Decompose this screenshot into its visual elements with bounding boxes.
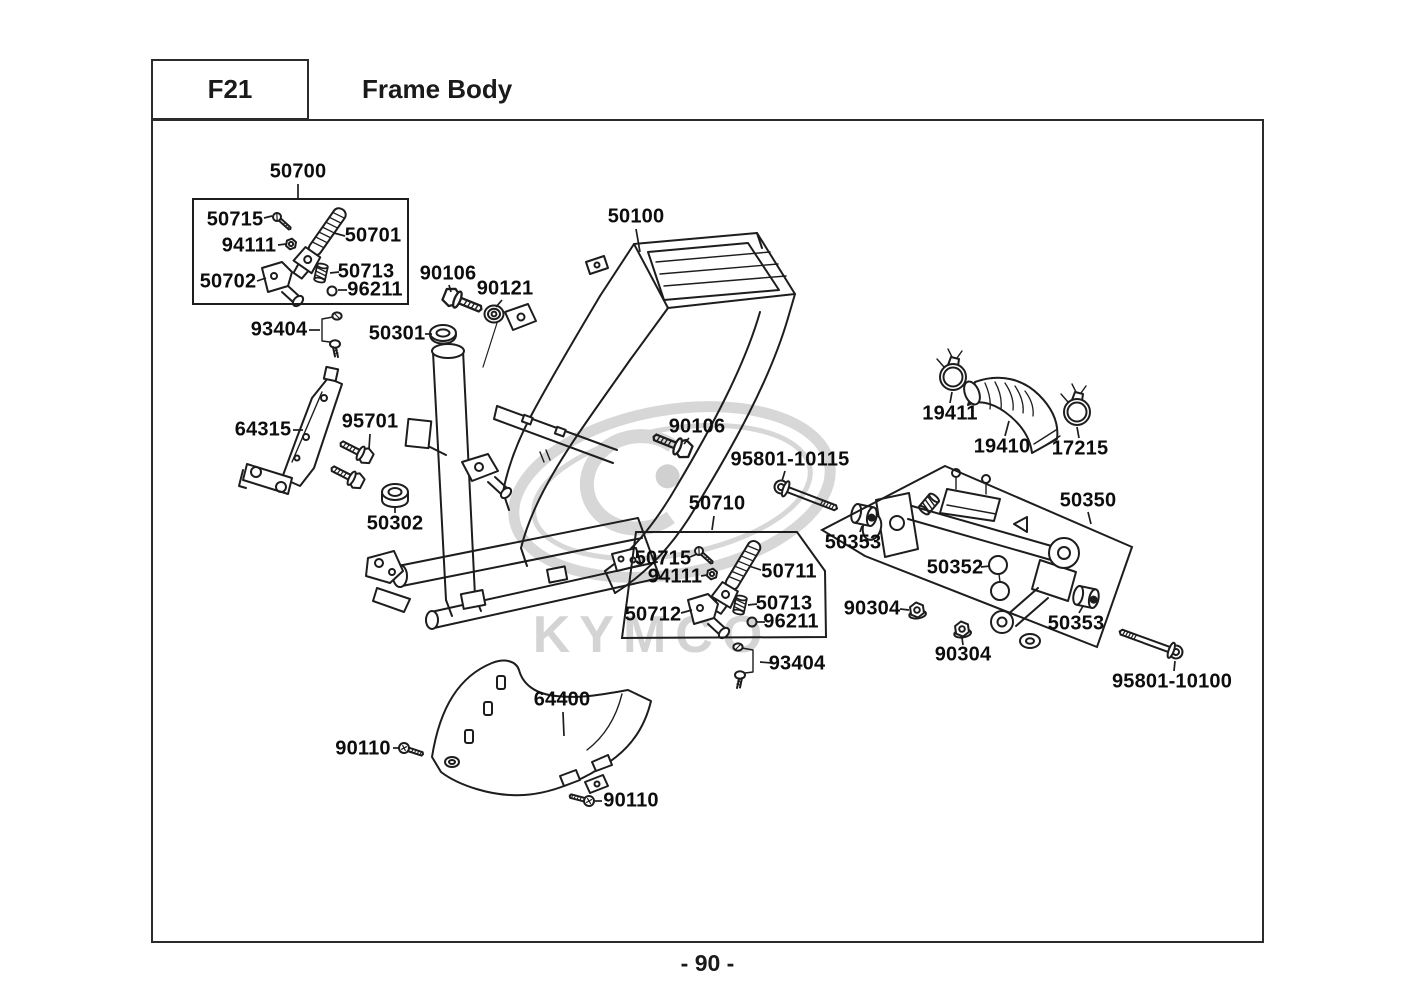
cap-50352-lower	[991, 582, 1009, 600]
frame-line-art	[239, 203, 1185, 807]
bolt-90106-a	[441, 286, 485, 318]
screw-90110-a	[398, 742, 425, 759]
air-duct-19410	[961, 378, 1060, 453]
nut-94111-a	[286, 238, 297, 250]
under-cover-64400	[432, 661, 651, 796]
watermark-brand-text: KYMCO	[533, 606, 772, 664]
diagram-canvas: KYMCO	[0, 0, 1415, 1000]
page-title: Frame Body	[362, 59, 512, 120]
hose-clamp-19411	[937, 349, 966, 390]
stand-bracket-64315	[239, 367, 342, 494]
bolt-95801-10100	[1117, 624, 1185, 662]
bracket-93404-a	[322, 312, 342, 357]
section-code: F21	[208, 74, 253, 105]
engine-hanger-50350	[860, 469, 1079, 648]
grommet-90121	[485, 306, 504, 323]
bracket-50702	[262, 262, 305, 308]
hose-clamp-17215	[1061, 384, 1090, 425]
catalog-page: F21 Frame Body	[0, 0, 1415, 1000]
cap-50352-upper	[989, 556, 1007, 574]
bushing-50353-left	[850, 503, 879, 527]
screw-50715-a	[271, 211, 293, 232]
group-box-50350	[822, 466, 1132, 647]
bushing-50302	[382, 484, 408, 507]
nut-90304-lower	[953, 620, 972, 638]
bolt-95701-b	[328, 461, 366, 491]
nut-90304-left	[908, 601, 927, 619]
section-code-box: F21	[151, 59, 309, 120]
bushing-50353-right	[1072, 585, 1101, 609]
cap-50301	[430, 325, 456, 344]
ring-96211-a	[328, 287, 337, 296]
kymco-emblem-icon	[579, 430, 687, 537]
